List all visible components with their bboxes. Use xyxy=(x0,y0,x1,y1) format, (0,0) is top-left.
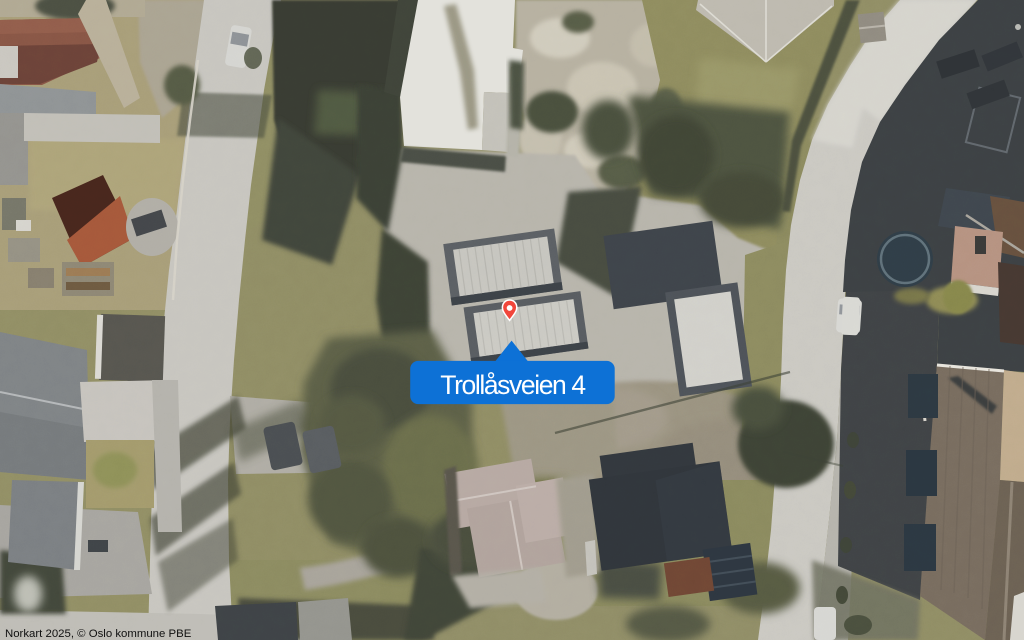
svg-text:Trollåsveien 4: Trollåsveien 4 xyxy=(440,370,585,400)
svg-text:Norkart 2025, © Oslo kommune P: Norkart 2025, © Oslo kommune PBE xyxy=(5,628,192,640)
